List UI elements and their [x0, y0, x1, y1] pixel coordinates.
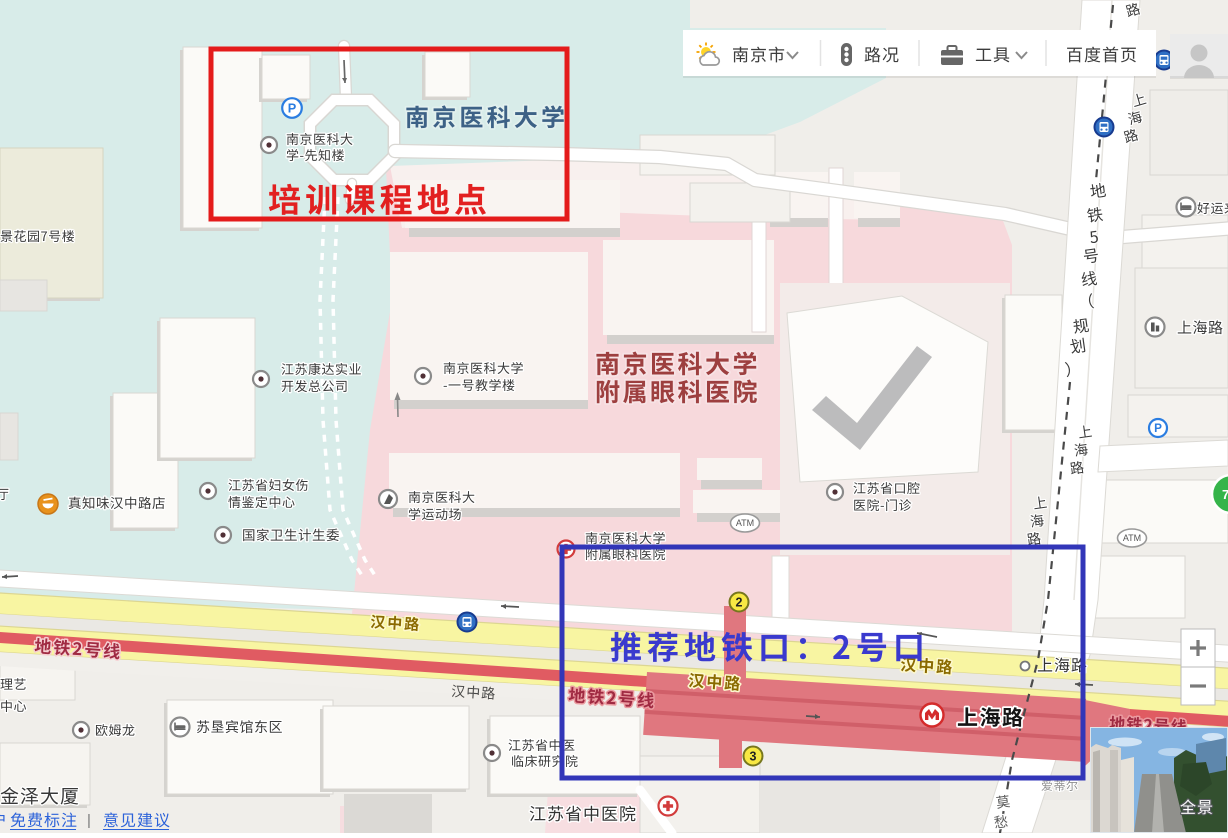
svg-text:P: P — [1154, 422, 1162, 435]
svg-text:ATM: ATM — [1123, 533, 1141, 543]
svg-text:75: 75 — [1222, 487, 1228, 502]
svg-text:3: 3 — [750, 750, 757, 764]
svg-text:ATM: ATM — [736, 518, 754, 528]
svg-text:|: | — [87, 812, 91, 829]
svg-text:2: 2 — [736, 596, 743, 610]
svg-text:P: P — [288, 100, 297, 115]
